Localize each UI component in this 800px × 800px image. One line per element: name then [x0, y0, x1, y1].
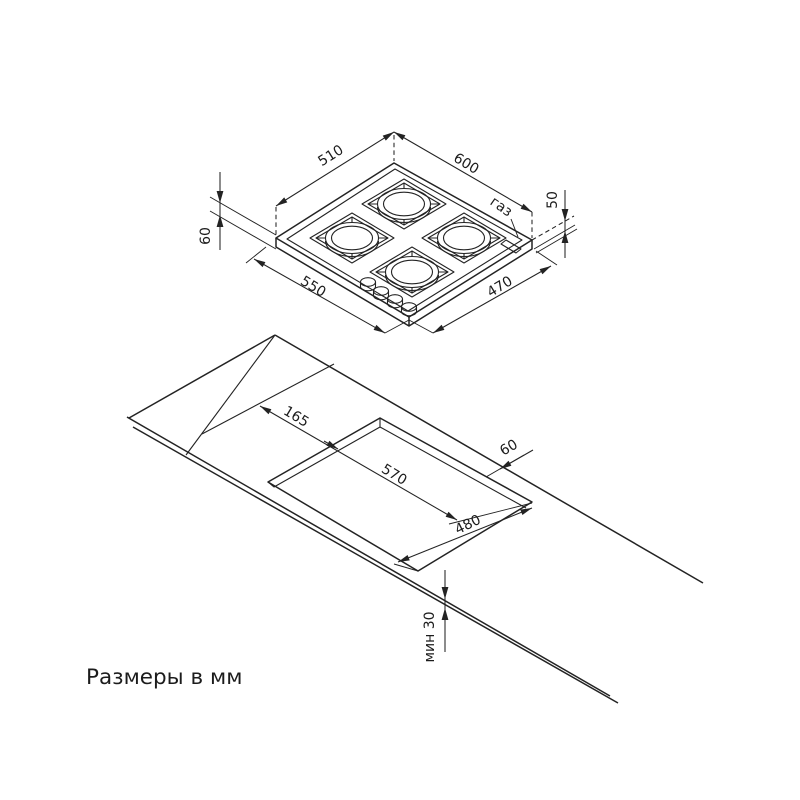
dimension-label-60-offset: 60	[497, 437, 520, 460]
cutout-opening	[268, 418, 532, 571]
dimension-min-30: мин 30	[422, 570, 448, 663]
burner-left	[310, 213, 394, 263]
worktop-cutout-view: 165 570 480 60 мин 30	[127, 335, 703, 703]
dimension-50-height: 50	[532, 190, 577, 258]
hob-isometric-view: газ 510 600 550 470	[198, 132, 577, 333]
worktop-rear-edge	[275, 335, 703, 583]
dimension-510: 510	[276, 132, 394, 236]
dimension-60-height: 60	[198, 172, 276, 250]
dimension-165: 165	[260, 403, 457, 520]
dimension-label-510: 510	[315, 142, 346, 170]
dimension-label-470: 470	[484, 273, 515, 300]
cutout-inner-lip	[268, 418, 526, 508]
dimension-label-550: 550	[297, 273, 328, 300]
worktop-rear-edge-left	[129, 335, 275, 418]
dimension-480: 480	[394, 508, 532, 571]
dimension-label-min-30: мин 30	[422, 611, 438, 662]
worktop-front-edge-bottom	[133, 427, 618, 703]
dimension-label-50-height: 50	[545, 191, 561, 209]
technical-drawing-page: газ 510 600 550 470	[0, 0, 800, 800]
worktop-inner-rear-line	[202, 364, 334, 434]
units-caption: Размеры в мм	[86, 665, 242, 690]
technical-drawing-canvas: газ 510 600 550 470	[0, 0, 800, 800]
dimension-label-570: 570	[378, 461, 409, 488]
burner-front	[370, 247, 454, 297]
burner-right	[422, 213, 506, 263]
gas-label: газ	[487, 194, 515, 221]
worktop-left-break-line	[186, 335, 275, 455]
dimension-label-60-height: 60	[198, 227, 214, 245]
burner-rear	[362, 179, 446, 229]
worktop-front-edge-top	[127, 417, 610, 696]
